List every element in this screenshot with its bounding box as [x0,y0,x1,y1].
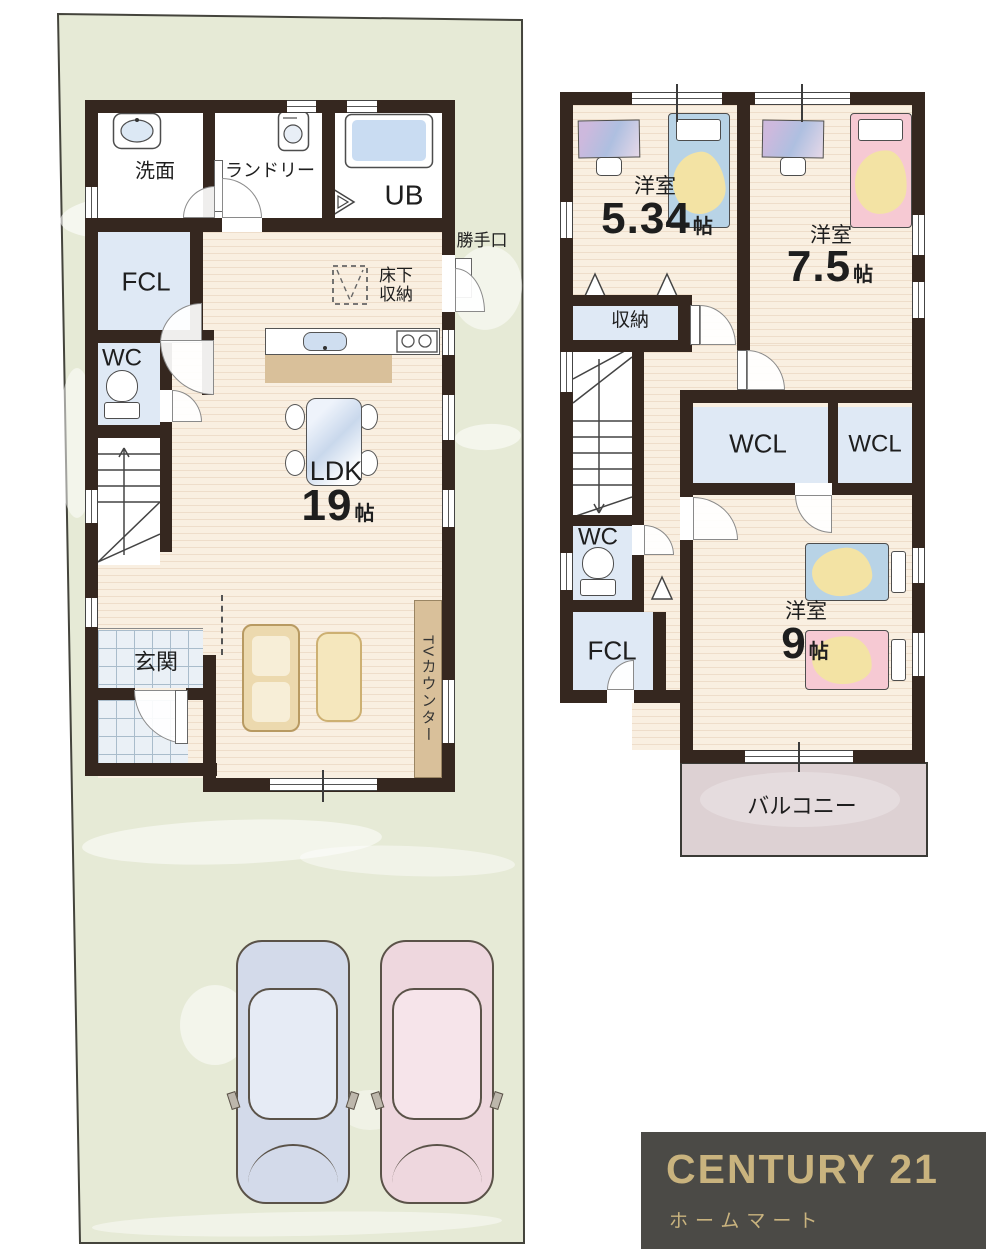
window [912,548,925,583]
car-windshield [392,988,482,1120]
door-leaf [690,305,700,345]
window-tick [801,84,803,122]
stairs-icon-2f [573,345,632,522]
toilet-tank-2f [580,579,616,596]
bed-blanket [852,148,909,216]
bed-pillow [891,551,906,593]
car-hood [392,1144,482,1190]
ottoman [316,632,362,722]
label-yukashita-1: 床下 [379,267,413,285]
window [560,553,573,590]
door-gap [222,218,262,232]
room-label-shuno: 収納 [611,311,649,331]
sofa-cushion [252,682,290,722]
window [442,490,455,527]
wall [571,295,692,306]
room-size-bed3-number: 9 [781,619,806,668]
desk-icon [578,119,641,158]
dining-chair [285,404,305,430]
hanger-pipe-icon [650,575,674,601]
kitchen-counter-back [265,355,392,383]
wall [85,763,217,776]
label-katteguchi: 勝手口 [457,232,508,250]
bed-blue [805,543,889,601]
genkan-threshold-line [98,628,203,629]
car-pink [380,940,494,1204]
room-label-fcl-1f: FCL [121,268,170,295]
wall [85,100,455,113]
door-gap [680,497,693,540]
door-gap [160,390,172,422]
tv-counter: TVカウンター [414,600,442,778]
wall [680,390,925,403]
room-size-bed1: 5.34帖 [601,196,713,242]
room-size-bed3-unit: 帖 [809,641,829,663]
window [287,100,316,113]
wall [98,218,442,232]
wall [322,112,335,218]
room-label-balcony: バルコニー [747,794,857,817]
logo-brand-text: CENTURY 21 [666,1146,939,1193]
wall [828,395,838,495]
floor-plan-page: TVカウンター [0,0,986,1258]
window [912,215,925,255]
bathtub-icon [344,113,434,169]
window [912,633,925,676]
wall [98,425,172,438]
room-label-laundry: ランドリー [225,162,315,181]
window [85,187,98,218]
wall [203,655,216,778]
wall [560,92,925,105]
logo-subtitle-text: ホームマート [669,1206,824,1233]
room-size-bed1-number: 5.34 [601,194,691,243]
door-gap [632,525,644,555]
room-label-wcl-right: WCL [848,431,901,456]
wall [560,600,644,612]
window-tick [798,742,800,772]
bed-pillow [676,119,721,141]
window [442,680,455,743]
car-blue [236,940,350,1204]
sofa-cushion [252,636,290,676]
room-size-bed2: 7.5帖 [787,244,873,290]
room-size-bed2-number: 7.5 [787,242,851,291]
room-size-bed3: 9帖 [781,621,828,667]
bed-blanket [810,546,873,598]
window [85,490,98,523]
wall [737,105,750,350]
room-size-bed2-unit: 帖 [853,264,873,286]
dining-chair [285,450,305,476]
window [560,352,573,392]
wall [632,345,644,522]
stairs-icon-1f [98,438,160,565]
desk-icon [762,119,825,158]
door-gap [795,483,832,495]
window-tick [676,84,678,122]
bed-pillow [891,639,906,681]
window [85,598,98,627]
room-label-wc-2f: WC [578,524,618,549]
car-windshield [248,988,338,1120]
room-label-wcl-left: WCL [729,430,787,457]
wall [560,340,692,352]
window [442,395,455,440]
room-size-bed1-unit: 帖 [693,216,713,238]
kitchen-faucet-icon [323,346,327,350]
car-hood [248,1144,338,1190]
tv-counter-label: TVカウンター [418,635,439,743]
front-door-leaf [175,690,188,744]
sofa [242,624,300,732]
room-boundary-dashed [221,595,223,655]
door-gap [607,690,634,703]
door-leaf [737,350,747,390]
wall [98,688,135,700]
wall [160,438,172,552]
toilet-icon-2f [582,547,614,579]
toilet-tank-1f [104,402,140,419]
bed-pillow [858,119,903,141]
label-yukashita-2: 収納 [379,286,413,304]
window [442,330,455,355]
room-label-genkan: 玄関 [134,650,178,673]
room-size-ldk-number: 19 [302,481,353,530]
room-label-ub: UB [385,180,424,209]
century21-logo: CENTURY 21 ホームマート [641,1132,986,1249]
room-size-ldk: 19帖 [302,483,375,529]
window [347,100,377,113]
washing-machine-icon [277,110,310,152]
room-label-wc-1f: WC [102,345,142,370]
stove-icon [396,330,438,353]
underfloor-storage-icon [331,264,369,306]
window-tick [322,770,324,802]
room-size-ldk-unit: 帖 [354,503,374,525]
bed-pink [850,113,912,228]
window [912,282,925,318]
washbasin-icon [112,112,162,150]
desk-chair-icon [780,157,806,176]
door-gap [442,255,455,312]
window [560,202,573,238]
room-label-senmen: 洗面 [135,162,175,183]
toilet-icon-1f [106,370,138,402]
room-label-fcl-2f: FCL [587,637,636,664]
desk-chair-icon [596,157,622,176]
